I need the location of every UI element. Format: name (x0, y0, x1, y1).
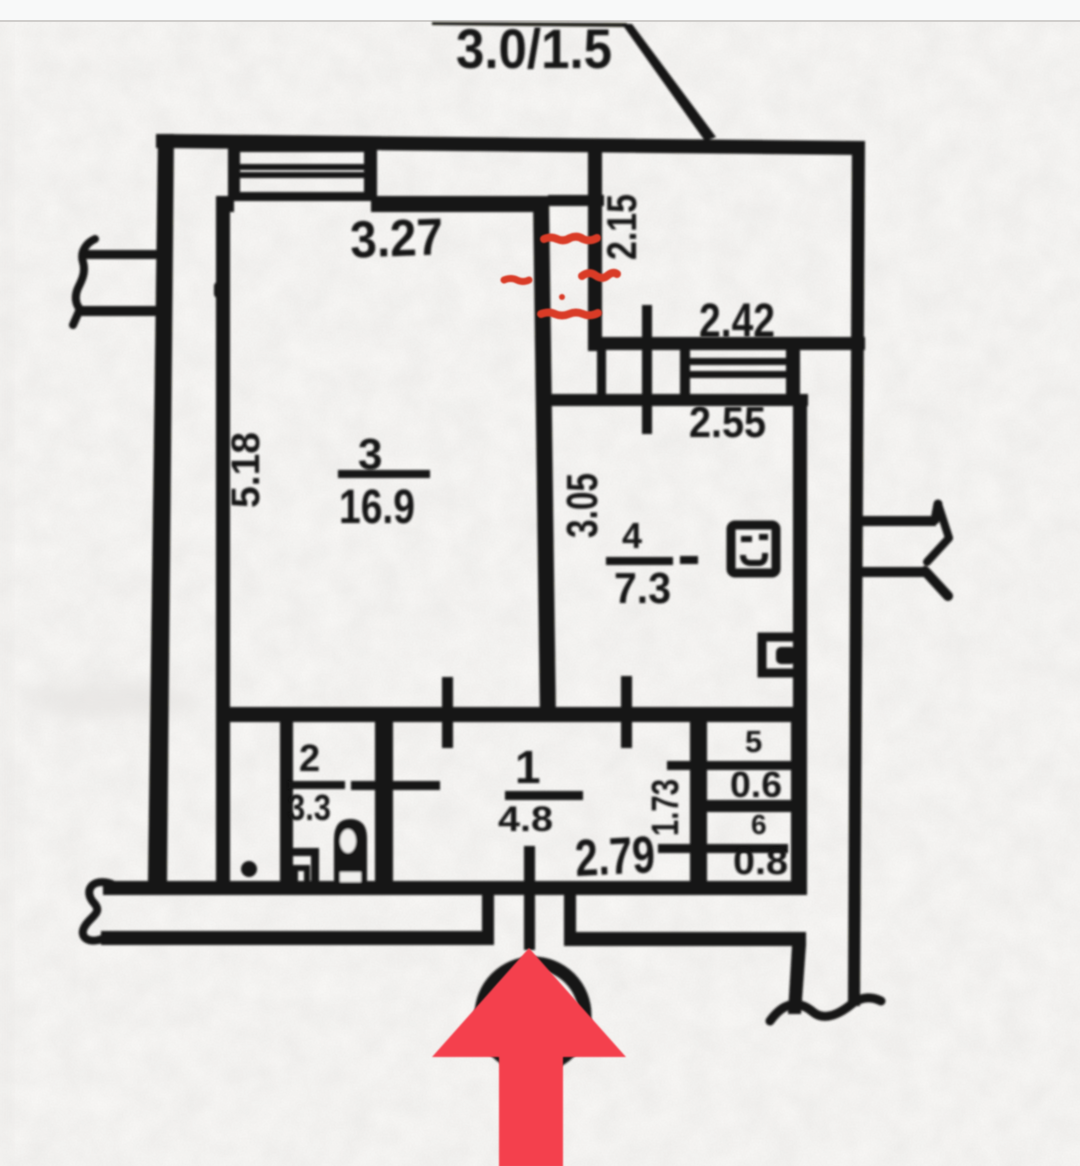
svg-text:4.8: 4.8 (498, 800, 553, 839)
svg-text:7.3: 7.3 (614, 564, 671, 613)
svg-text:5.18: 5.18 (224, 432, 268, 508)
svg-text:4: 4 (622, 515, 642, 556)
svg-text:0.8: 0.8 (733, 841, 788, 883)
svg-text:0.6: 0.6 (730, 764, 782, 805)
svg-text:2.42: 2.42 (699, 295, 775, 348)
svg-text:3.3: 3.3 (288, 787, 331, 828)
svg-text:2.15: 2.15 (598, 194, 645, 260)
svg-text:3.05: 3.05 (558, 473, 607, 538)
svg-text:2.55: 2.55 (689, 398, 766, 447)
svg-text:16.9: 16.9 (339, 481, 415, 534)
svg-text:2: 2 (299, 738, 320, 780)
svg-text:3.0/1.5: 3.0/1.5 (456, 17, 612, 80)
svg-text:5: 5 (745, 724, 762, 759)
svg-text:1.73: 1.73 (645, 779, 687, 836)
svg-text:3.27: 3.27 (349, 208, 444, 269)
svg-text:6: 6 (751, 809, 767, 840)
svg-text:1: 1 (515, 741, 541, 793)
